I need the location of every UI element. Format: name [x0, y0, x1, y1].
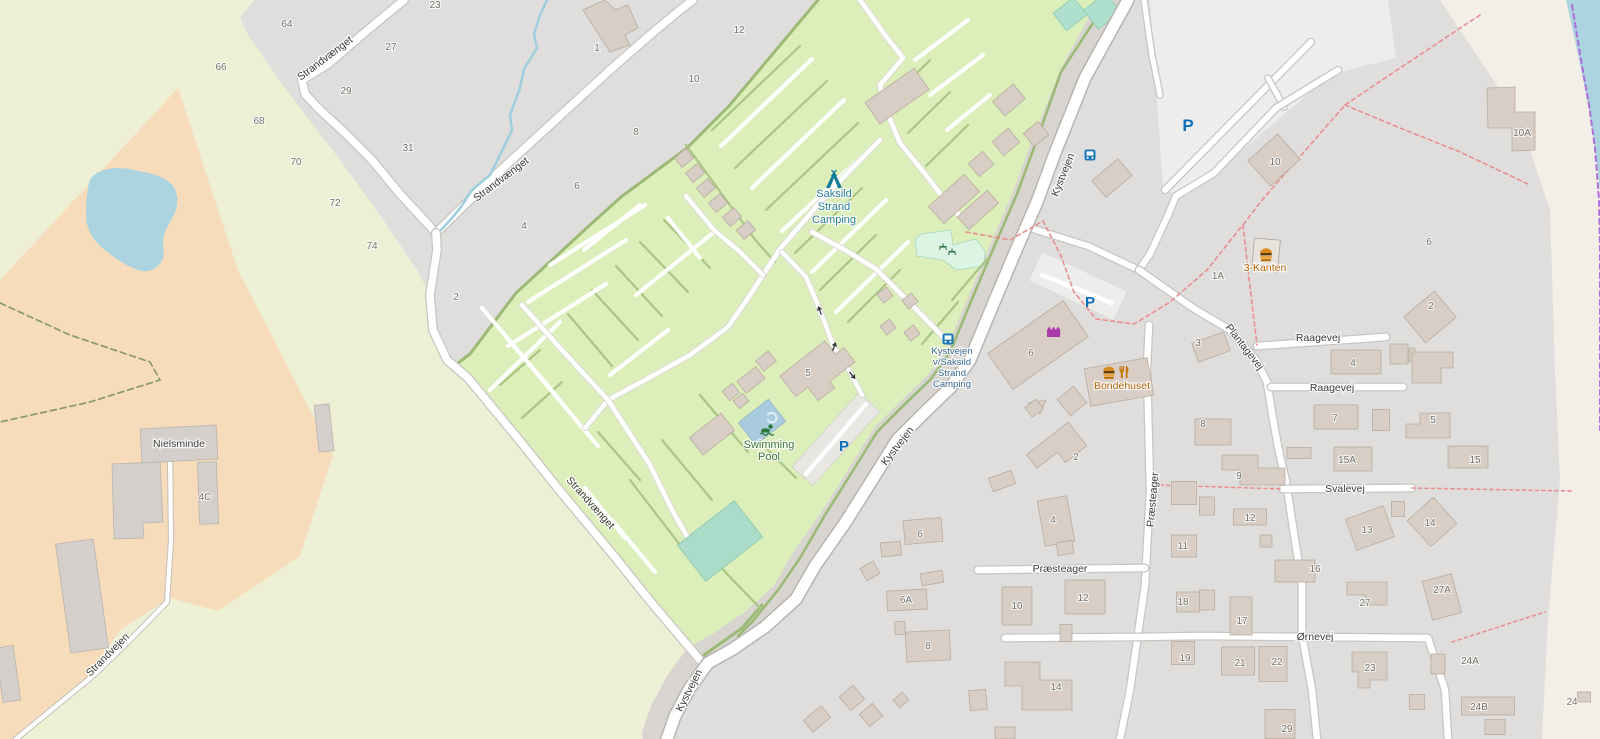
svg-text:Præsteager: Præsteager — [1033, 563, 1088, 575]
svg-text:29: 29 — [1281, 724, 1293, 735]
svg-text:72: 72 — [329, 198, 341, 209]
svg-text:1A: 1A — [1212, 271, 1225, 282]
svg-text:16: 16 — [1309, 564, 1321, 575]
svg-text:8: 8 — [925, 641, 931, 652]
svg-text:P: P — [1182, 116, 1193, 135]
svg-text:Ørnevej: Ørnevej — [1297, 631, 1334, 643]
svg-text:Strand: Strand — [818, 201, 850, 213]
svg-text:11: 11 — [1178, 541, 1189, 552]
svg-text:27A: 27A — [1433, 585, 1451, 596]
svg-text:v/Saksild: v/Saksild — [933, 357, 971, 368]
svg-text:12: 12 — [1077, 593, 1089, 604]
svg-text:17: 17 — [1236, 616, 1248, 627]
svg-text:5: 5 — [1430, 415, 1436, 426]
svg-text:12: 12 — [1244, 513, 1256, 524]
svg-text:8: 8 — [1200, 419, 1206, 430]
svg-text:Saksild: Saksild — [816, 188, 851, 200]
svg-text:5: 5 — [805, 368, 811, 379]
svg-text:Pool: Pool — [758, 451, 780, 463]
svg-text:4: 4 — [1050, 515, 1056, 526]
svg-text:24: 24 — [1566, 697, 1578, 708]
svg-text:27: 27 — [385, 42, 397, 53]
svg-text:6: 6 — [917, 529, 923, 540]
svg-text:68: 68 — [253, 116, 265, 127]
svg-text:74: 74 — [366, 241, 378, 252]
svg-text:10: 10 — [1011, 601, 1023, 612]
svg-text:29: 29 — [340, 86, 352, 97]
svg-text:6: 6 — [574, 181, 580, 192]
svg-text:6A: 6A — [900, 595, 913, 606]
svg-text:9: 9 — [1236, 471, 1242, 482]
svg-text:19: 19 — [1179, 653, 1191, 664]
svg-text:8: 8 — [633, 127, 639, 138]
svg-text:P: P — [839, 438, 849, 455]
svg-text:14: 14 — [1050, 682, 1062, 693]
svg-text:12: 12 — [733, 25, 745, 36]
svg-text:24B: 24B — [1470, 702, 1488, 713]
svg-text:23: 23 — [1364, 663, 1376, 674]
svg-text:10: 10 — [688, 74, 700, 85]
svg-text:P: P — [1085, 294, 1095, 311]
svg-text:2: 2 — [1428, 301, 1434, 312]
svg-text:13: 13 — [1361, 525, 1373, 536]
svg-text:4: 4 — [1350, 358, 1356, 369]
svg-text:2: 2 — [1073, 452, 1079, 463]
svg-text:4: 4 — [521, 221, 527, 232]
svg-text:10: 10 — [1269, 157, 1281, 168]
svg-text:Nielsminde: Nielsminde — [153, 438, 205, 450]
svg-text:31: 31 — [402, 143, 414, 154]
svg-text:23: 23 — [429, 0, 441, 11]
svg-text:Raagevej: Raagevej — [1310, 382, 1354, 394]
svg-text:Kystvejen: Kystvejen — [931, 346, 972, 357]
svg-text:3-Kanten: 3-Kanten — [1244, 262, 1287, 274]
svg-text:4C: 4C — [199, 492, 212, 503]
svg-text:1: 1 — [594, 43, 600, 54]
svg-text:22: 22 — [1271, 657, 1283, 668]
svg-text:10A: 10A — [1513, 128, 1531, 139]
svg-text:Swimming: Swimming — [744, 439, 795, 451]
svg-text:2: 2 — [453, 292, 459, 303]
svg-text:6: 6 — [1028, 348, 1034, 359]
svg-text:24A: 24A — [1461, 656, 1479, 667]
svg-text:6: 6 — [1426, 237, 1432, 248]
svg-text:Strand: Strand — [938, 368, 966, 379]
svg-text:64: 64 — [281, 19, 293, 30]
svg-text:27: 27 — [1359, 598, 1371, 609]
svg-text:66: 66 — [215, 62, 227, 73]
svg-text:Camping: Camping — [812, 214, 856, 226]
svg-text:3: 3 — [1195, 338, 1201, 349]
svg-text:Raagevej: Raagevej — [1296, 332, 1340, 344]
svg-text:70: 70 — [290, 157, 302, 168]
svg-text:18: 18 — [1177, 597, 1189, 608]
svg-text:Svalevej: Svalevej — [1325, 483, 1365, 495]
svg-text:14: 14 — [1424, 518, 1436, 529]
svg-text:Camping: Camping — [933, 379, 971, 390]
svg-text:15: 15 — [1469, 455, 1481, 466]
svg-text:21: 21 — [1234, 658, 1246, 669]
svg-text:7: 7 — [1332, 413, 1338, 424]
svg-text:15A: 15A — [1338, 455, 1356, 466]
svg-text:Bondehuset: Bondehuset — [1094, 380, 1150, 392]
